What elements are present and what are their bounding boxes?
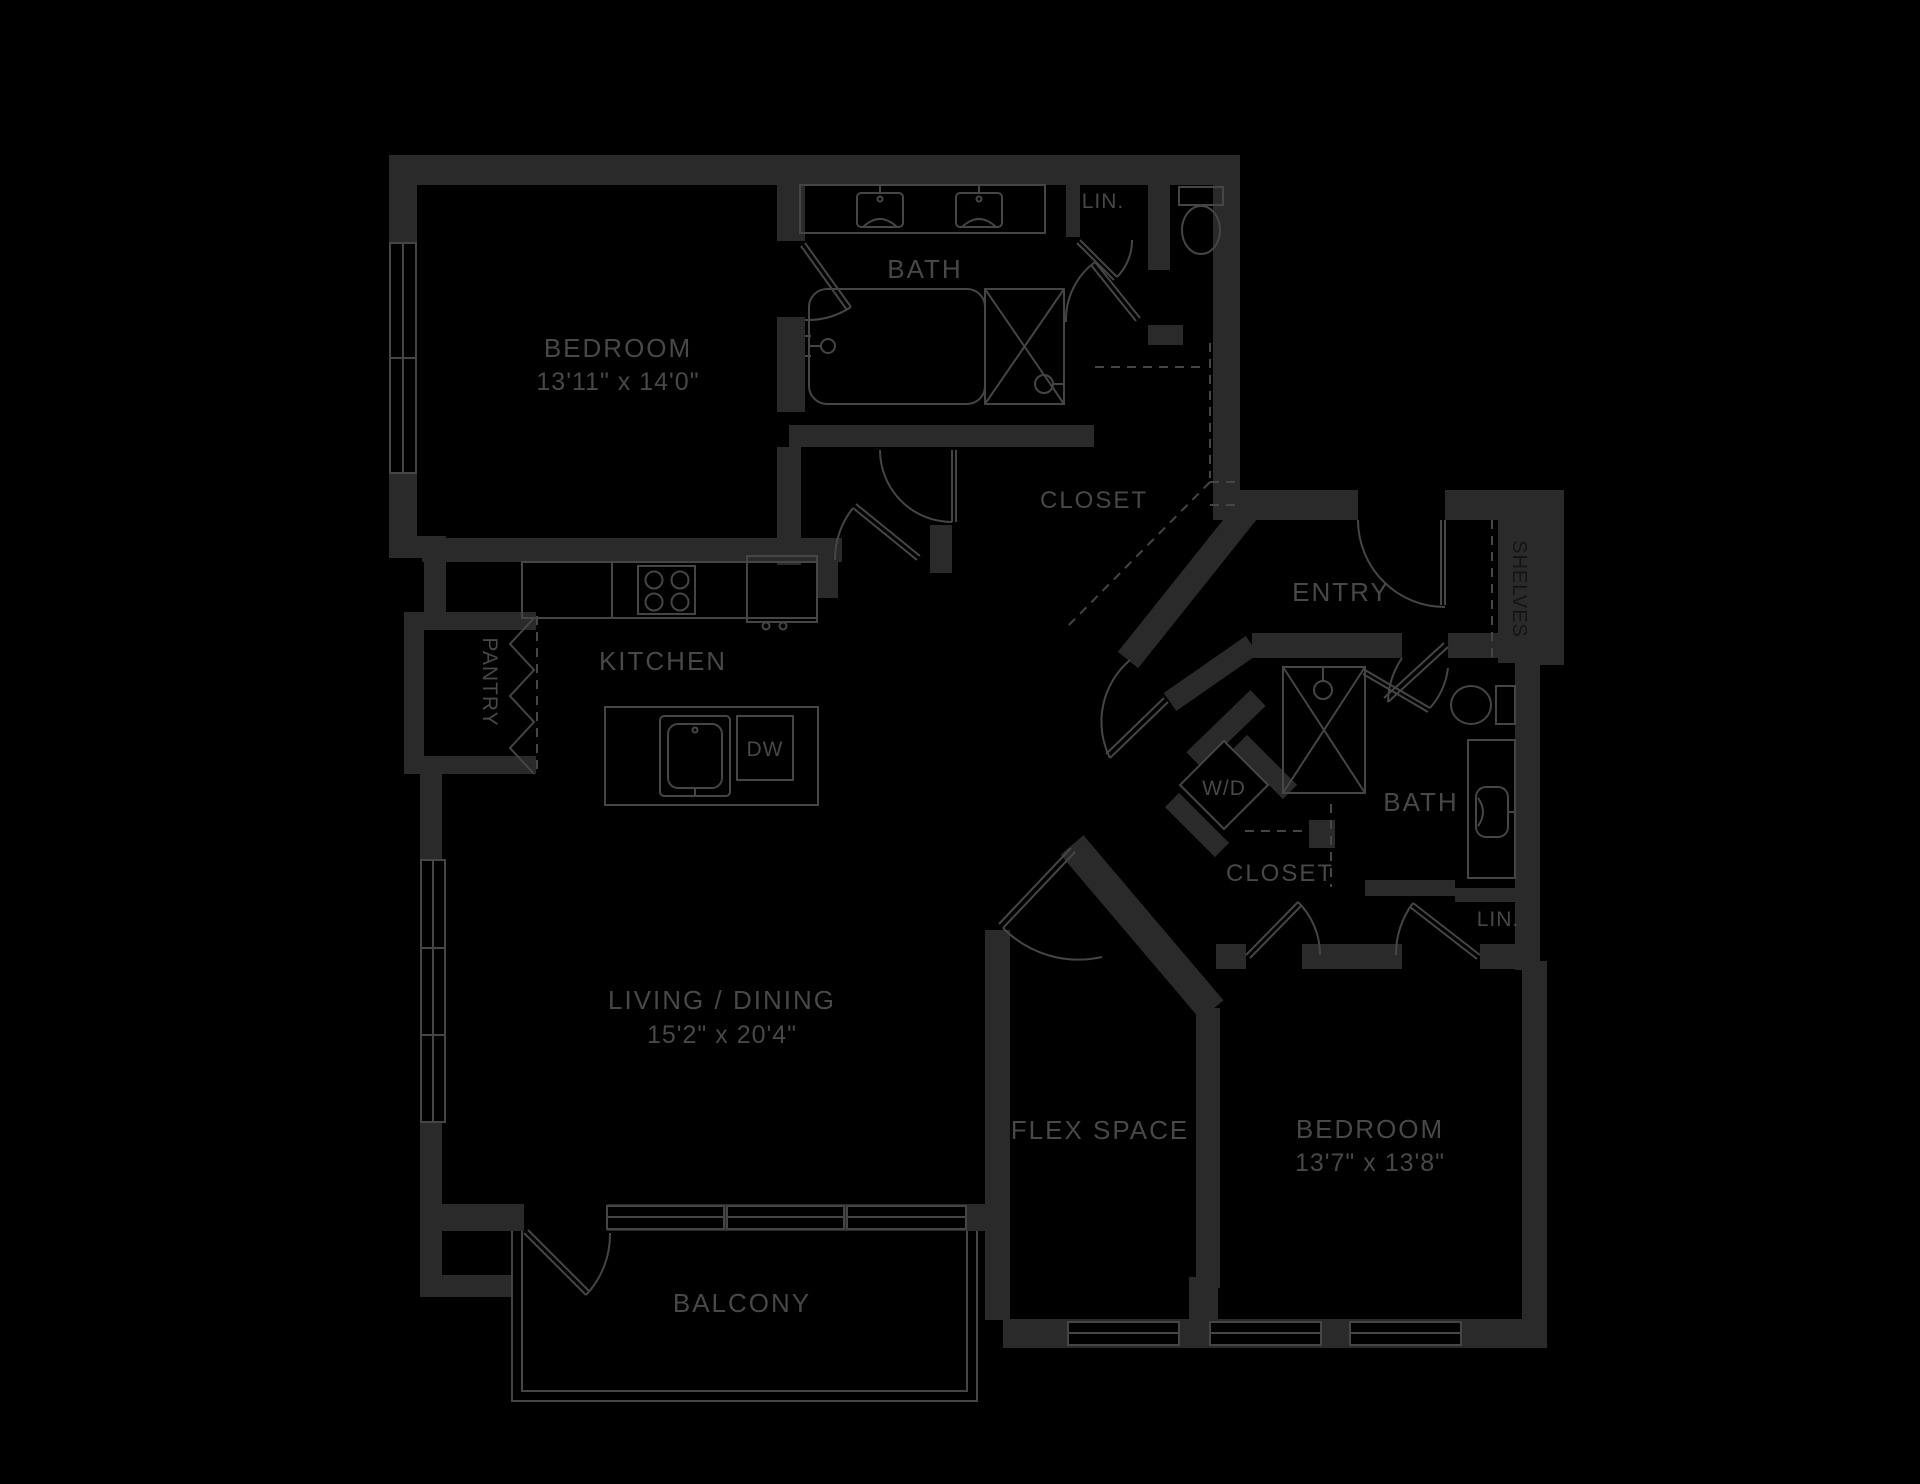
label-entry: ENTRY [1292, 577, 1390, 607]
wall-bath2-north-right [1448, 633, 1518, 658]
toilet2-icon [1451, 686, 1515, 724]
kitchen-island [605, 707, 818, 805]
wall-bed2-north [1302, 944, 1402, 969]
wall-flex-bed2-stub [1189, 1277, 1218, 1322]
shower1-icon [985, 289, 1064, 404]
label-bath2: BATH [1383, 787, 1458, 817]
wall-diagonal-flex [1072, 845, 1212, 1010]
wall-kitchen-top [422, 538, 842, 562]
pantry-shelves-icon [510, 616, 537, 776]
label-living: LIVING / DINING [608, 985, 836, 1015]
label-lin1: LIN. [1082, 190, 1125, 213]
wall-bed2-north-stub [1216, 944, 1246, 969]
label-balcony: BALCONY [673, 1288, 811, 1318]
wall-wc-east [1213, 155, 1240, 520]
door-hall [1101, 660, 1168, 758]
label-wd: W/D [1202, 777, 1246, 800]
label-closet1: CLOSET [1040, 487, 1148, 514]
wall-sw-stub [420, 1275, 512, 1297]
label-kitchen: KITCHEN [599, 646, 727, 676]
wall-living-west-b [420, 1122, 442, 1297]
windows-south-bedrooms [1068, 1322, 1461, 1345]
wall-flex-bed2 [1196, 1008, 1220, 1288]
wall-diagonal-a [1170, 645, 1252, 702]
wall-wc-south-stub [1148, 325, 1183, 345]
wall-east-outer-upper [1538, 512, 1564, 665]
floor-plan-svg: BEDROOM 13'11" x 14'0" BATH LIN. CLOSET … [0, 0, 1920, 1484]
wall-living-west-a [420, 774, 442, 860]
wall-kitchen-west [424, 558, 446, 618]
label-bedroom1: BEDROOM [544, 333, 692, 363]
door-wc [1066, 262, 1140, 322]
windows-living-south [607, 1206, 966, 1229]
door-shower2 [1363, 668, 1448, 712]
wall-kitchen-east-stub [817, 562, 838, 598]
wall-bed1-east-b [777, 317, 805, 412]
wall-bed1-west-a [389, 155, 417, 243]
dims-living: 15'2" x 20'4" [647, 1021, 797, 1049]
bathtub-icon [805, 289, 985, 404]
wall-bed2-east [1522, 961, 1547, 1348]
wall-south-left [442, 1204, 524, 1231]
dims-bedroom2: 13'7" x 13'8" [1295, 1149, 1445, 1177]
door-closet1 [880, 450, 956, 522]
wall-bath2-south [1365, 880, 1455, 896]
wall-lin1-west [1066, 155, 1080, 237]
label-bath1: BATH [887, 254, 962, 284]
stove-icon [638, 566, 695, 614]
label-closet2: CLOSET [1226, 860, 1334, 887]
vanity-bath2 [1468, 740, 1515, 878]
window-living-west [421, 860, 445, 1122]
shower2-icon [1283, 667, 1365, 793]
island-sink-icon [660, 716, 730, 796]
sink-icon [857, 186, 903, 227]
kitchen-counter [522, 556, 817, 630]
vanity-bath1 [800, 185, 1045, 233]
wall-flex-west [985, 930, 1010, 1320]
wall-bath1-south [789, 425, 1094, 447]
wall-bath2-north-left [1252, 633, 1402, 658]
wall-wc-west [1148, 185, 1170, 270]
label-dw: DW [747, 738, 784, 761]
label-flex: FLEX SPACE [1011, 1115, 1189, 1145]
door-bedroom1 [835, 504, 920, 560]
window-bedroom1 [390, 243, 416, 473]
sink-icon [956, 186, 1002, 227]
dims-bedroom1: 13'11" x 14'0" [536, 368, 699, 396]
label-lin2: LIN. [1477, 908, 1520, 931]
label-shelves: SHELVES [1508, 540, 1530, 638]
wall-lin2-top [1455, 888, 1540, 902]
floor-plan-page: BEDROOM 13'11" x 14'0" BATH LIN. CLOSET … [0, 0, 1920, 1484]
wall-pantry-west [404, 612, 424, 774]
wall-diagonal-closet1 [1128, 502, 1254, 660]
door-bedroom2 [1396, 903, 1480, 959]
label-bedroom2: BEDROOM [1296, 1114, 1444, 1144]
wall-pantry-top [424, 612, 536, 630]
wall-closet1-sw-stub [930, 525, 952, 573]
label-pantry: PANTRY [478, 637, 501, 726]
wall-bed2-north-ext [1480, 944, 1540, 969]
door-balcony [524, 1230, 610, 1295]
wall-top [389, 155, 1240, 185]
